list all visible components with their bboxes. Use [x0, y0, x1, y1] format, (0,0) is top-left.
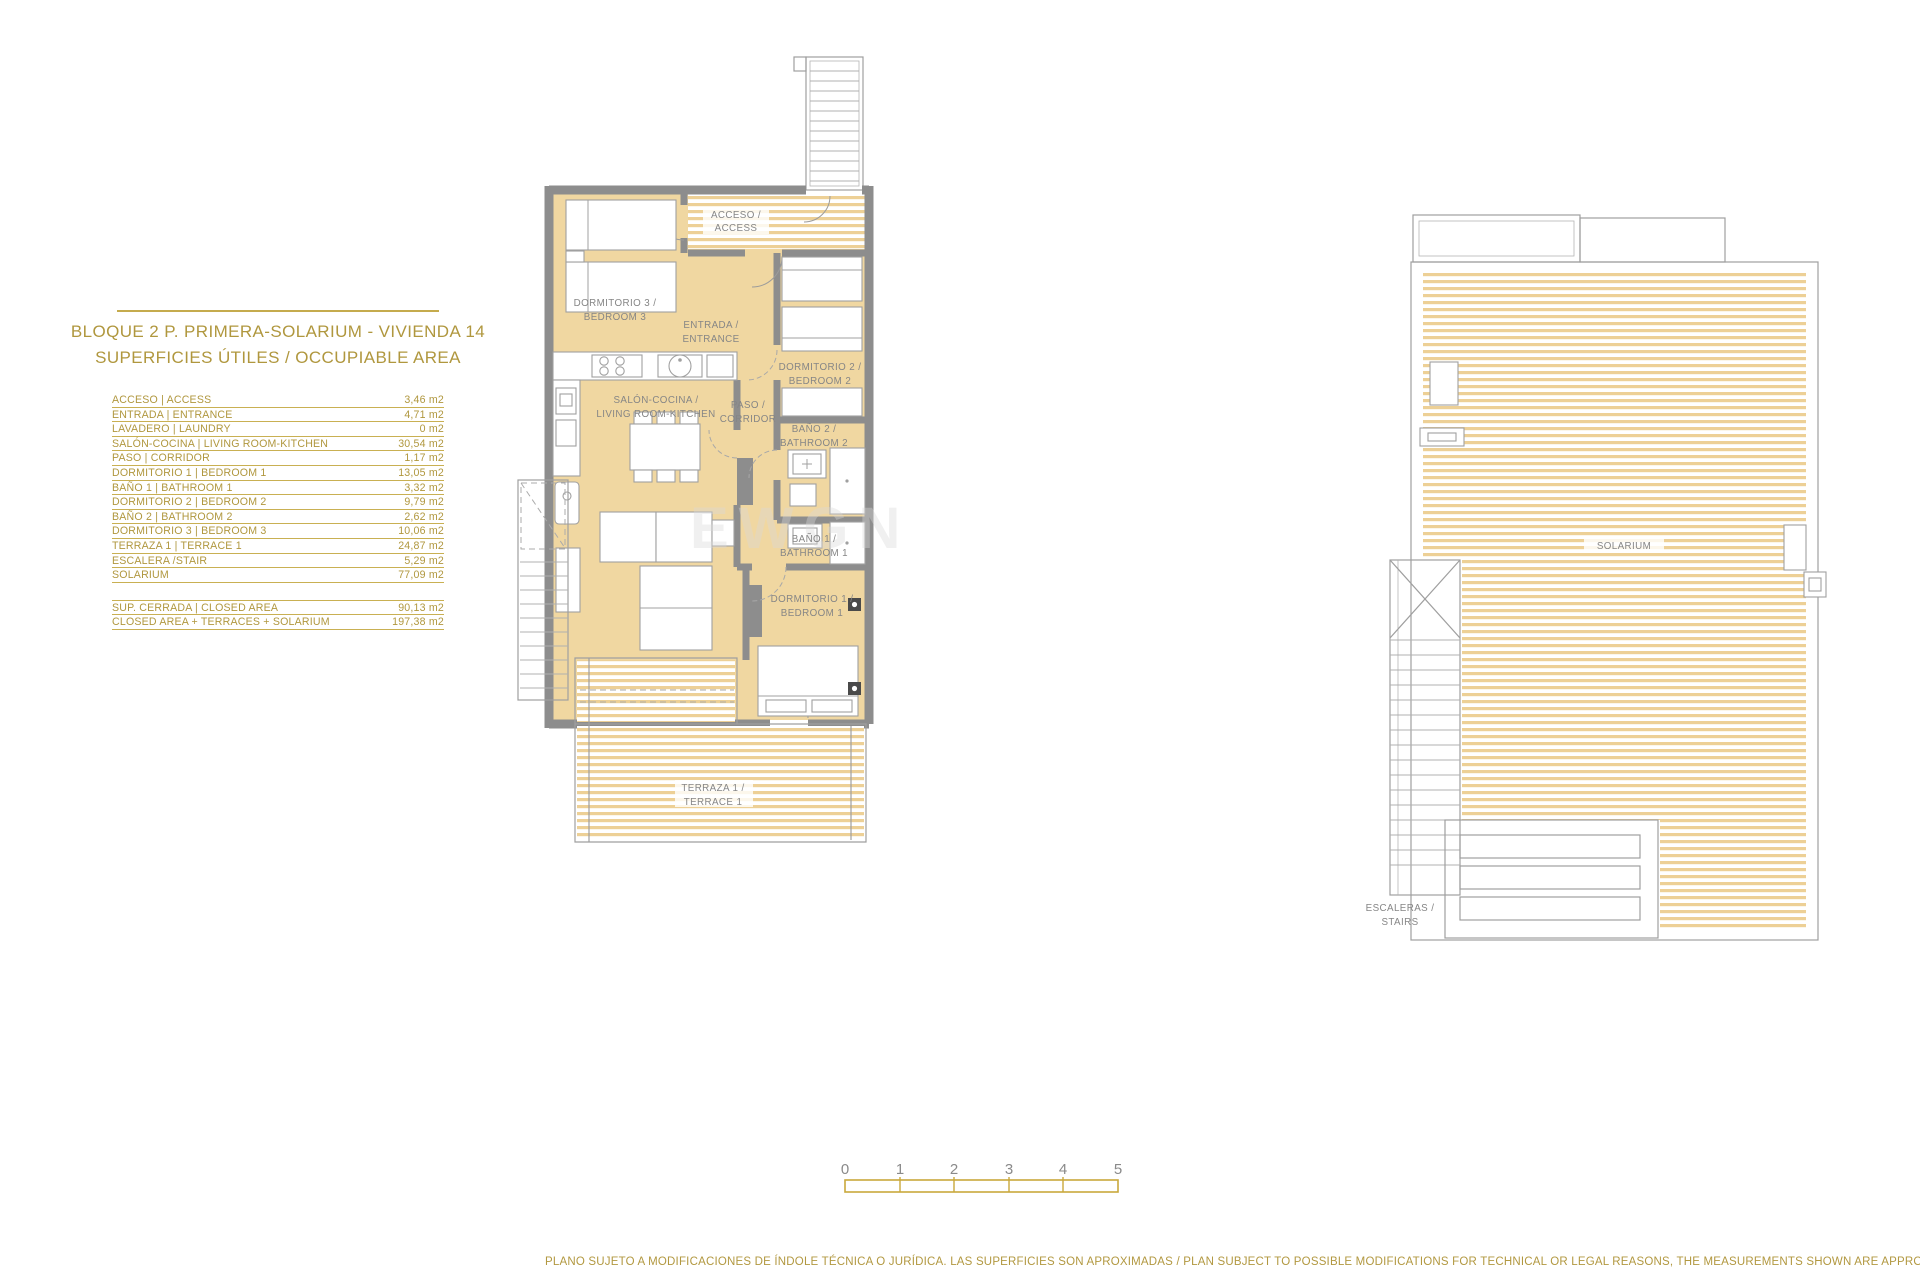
scale-tick-2: 2	[950, 1161, 958, 1178]
label-paso-2: CORRIDOR	[720, 414, 777, 425]
label-dormitorio3-1: DORMITORIO 3 /	[574, 298, 657, 309]
sofa	[600, 512, 656, 562]
label-escaleras-1: ESCALERAS /	[1366, 903, 1435, 914]
label-terraza-1: TERRAZA 1 /	[681, 783, 744, 794]
scale-tick-0: 0	[841, 1161, 849, 1178]
floor-plan-drawing: EWGN ACCESO / ACCESS DORMITORIO 3 / BEDR…	[0, 0, 1920, 1280]
dining-table	[630, 424, 700, 470]
label-salon-1: SALÓN-COCINA /	[613, 395, 698, 406]
label-dormitorio1-1: DORMITORIO 1 /	[771, 594, 854, 605]
label-dormitorio2-2: BEDROOM 2	[789, 376, 851, 387]
label-bano1-1: BAÑO 1 /	[792, 534, 837, 545]
solarium-deck	[1423, 272, 1806, 930]
solarium-plan: SOLARIUM ESCALERAS / STAIRS	[1366, 215, 1826, 940]
solarium-stairs	[1390, 560, 1460, 895]
label-paso-1: PASO /	[731, 400, 765, 411]
laundry-appliance	[555, 482, 579, 524]
label-bano2-2: BATHROOM 2	[780, 438, 848, 449]
label-salon-2: LIVING ROOM-KITCHEN	[596, 409, 715, 420]
label-dormitorio2-1: DORMITORIO 2 /	[779, 362, 862, 373]
scale-tick-4: 4	[1059, 1161, 1067, 1178]
scale-bar: 0 1 2 3 4 5	[841, 1161, 1122, 1192]
planter	[1430, 362, 1458, 405]
label-solarium: SOLARIUM	[1597, 541, 1651, 552]
label-escaleras-2: STAIRS	[1381, 917, 1418, 928]
scale-tick-3: 3	[1005, 1161, 1013, 1178]
label-acceso-2: ACCESS	[715, 223, 758, 234]
bedroom2-furniture	[782, 257, 862, 416]
label-acceso-1: ACCESO /	[711, 210, 761, 221]
apartment-plan: EWGN ACCESO / ACCESS DORMITORIO 3 / BEDR…	[518, 57, 910, 842]
label-dormitorio3-2: BEDROOM 3	[584, 312, 647, 323]
disclaimer-text: PLANO SUJETO A MODIFICACIONES DE ÍNDOLE …	[545, 1256, 1905, 1268]
label-bano2-1: BAÑO 2 /	[792, 424, 837, 435]
label-entrada-1: ENTRADA /	[683, 320, 738, 331]
label-terraza-2: TERRACE 1	[684, 797, 743, 808]
label-entrada-2: ENTRANCE	[682, 334, 739, 345]
label-bano1-2: BATHROOM 1	[780, 548, 848, 559]
scale-tick-5: 5	[1114, 1161, 1122, 1178]
label-dormitorio1-2: BEDROOM 1	[781, 608, 843, 619]
pergola-slats	[1445, 820, 1658, 938]
access-stairs	[794, 57, 863, 190]
scale-tick-1: 1	[896, 1161, 904, 1178]
